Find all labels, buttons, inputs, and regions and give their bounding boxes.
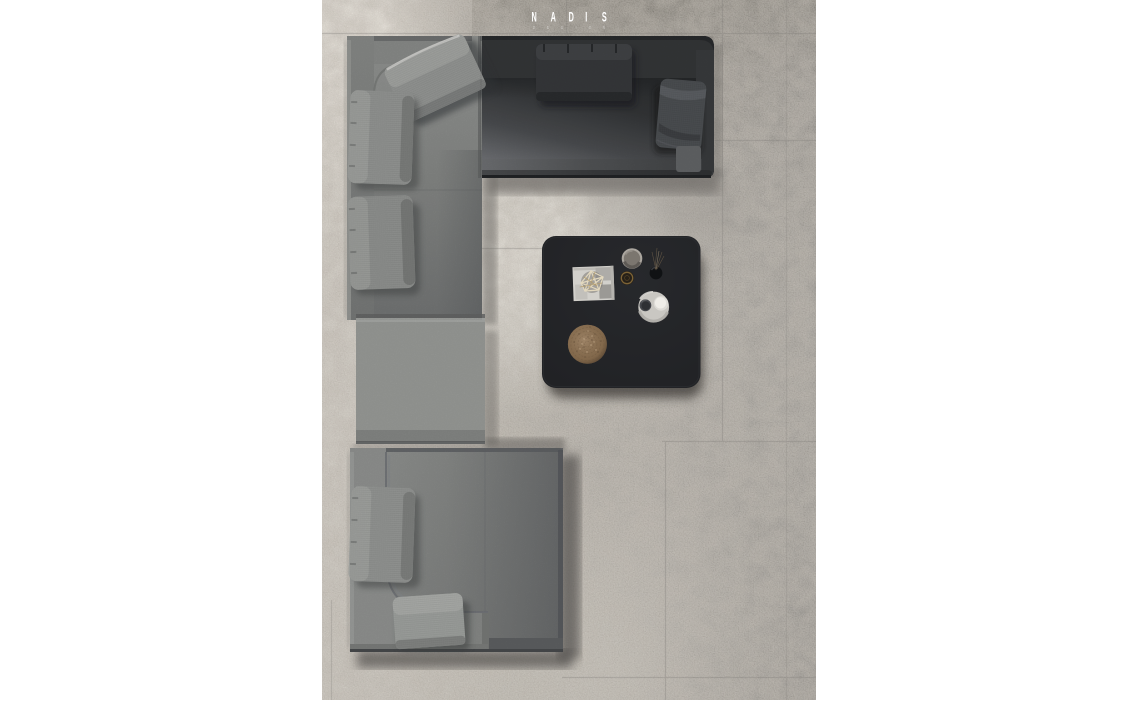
svg-text:S: S xyxy=(602,10,607,25)
svg-text:D: D xyxy=(569,10,574,25)
svg-text:S: S xyxy=(561,24,564,30)
svg-text:D: D xyxy=(533,24,536,30)
svg-text:E: E xyxy=(547,24,550,30)
svg-text:A: A xyxy=(551,10,556,25)
svg-text:I: I xyxy=(575,24,576,30)
svg-text:I: I xyxy=(585,10,587,25)
svg-text:G: G xyxy=(589,24,592,30)
svg-text:N: N xyxy=(603,24,606,30)
svg-text:N: N xyxy=(531,10,536,25)
